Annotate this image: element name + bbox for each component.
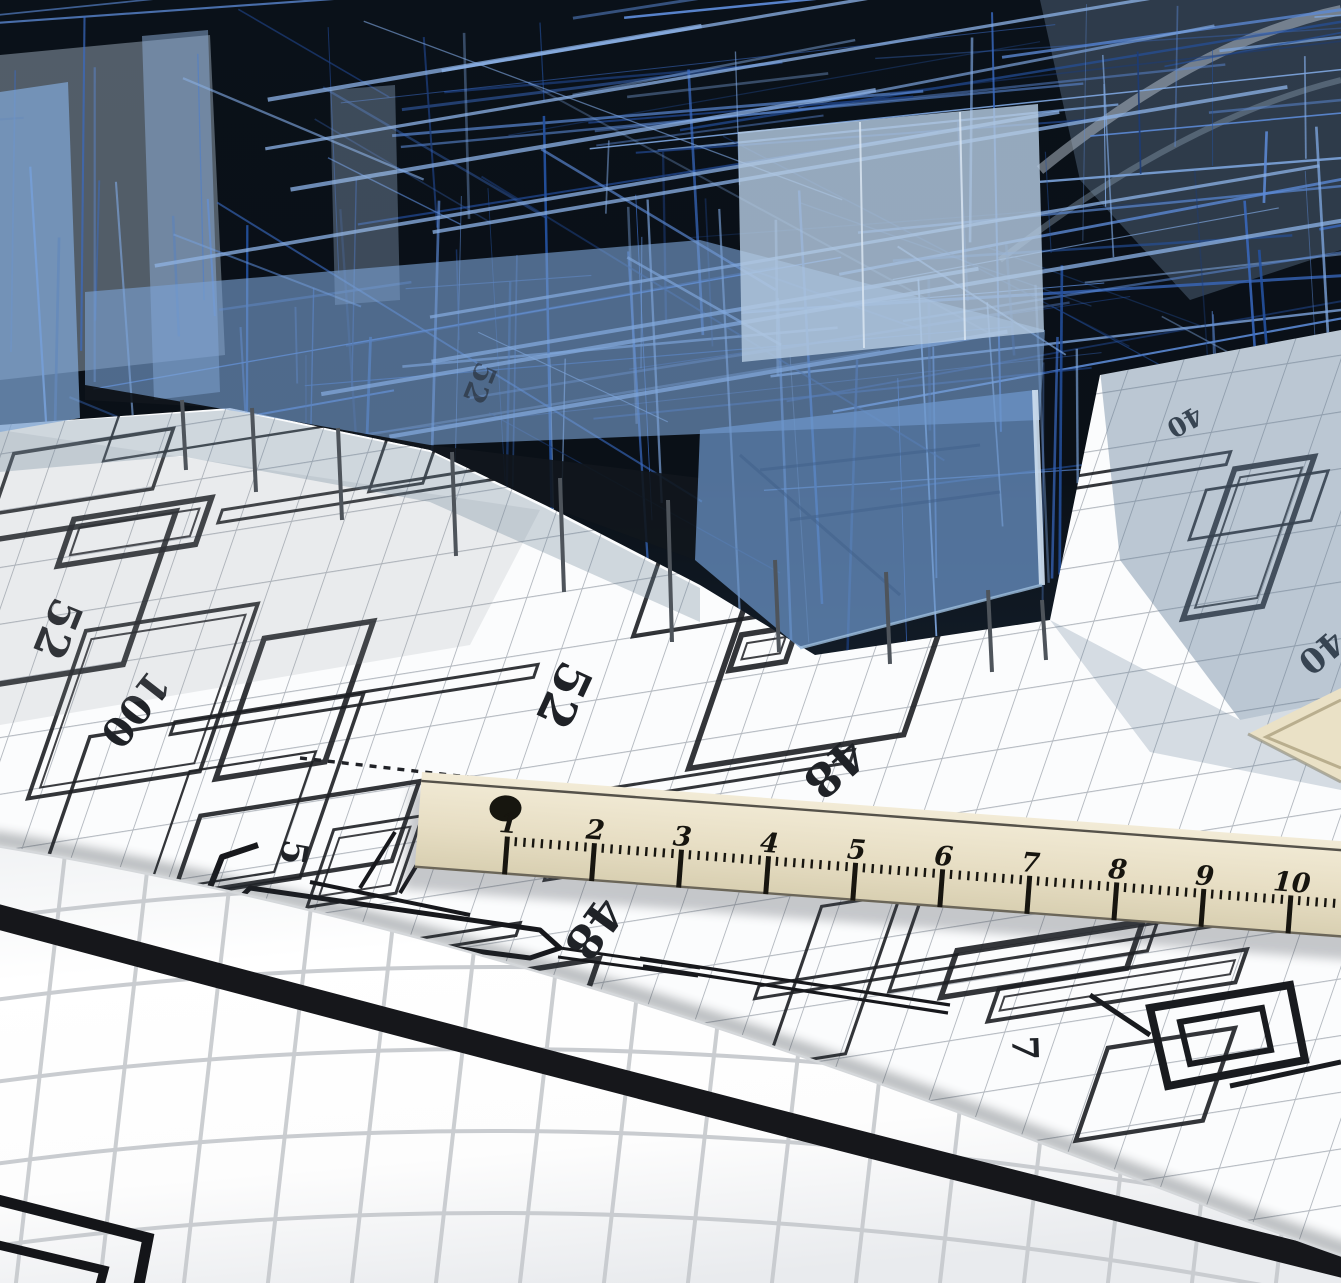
ruler-number: 1 (498, 808, 519, 840)
glass-wall-left (0, 82, 80, 432)
ruler-number: 3 (672, 821, 693, 853)
ruler-number: 4 (759, 828, 780, 860)
ruler-number: 9 (1194, 860, 1215, 892)
blueprint-scene: 52 100 52 48 48 5 40 40 7 (0, 0, 1341, 1283)
ruler-number: 5 (846, 834, 867, 866)
wireframe-line (1305, 56, 1306, 159)
dimension-label: 7 (1003, 1035, 1046, 1062)
ruler-number: 6 (933, 841, 954, 873)
ruler-number: 7 (1020, 847, 1041, 879)
scene-canvas: 52 100 52 48 48 5 40 40 7 (0, 0, 1341, 1283)
ruler-number: 10 (1272, 866, 1312, 900)
ruler-number: 2 (584, 814, 606, 846)
ruler-number: 8 (1106, 854, 1128, 886)
wireframe-line (1077, 349, 1078, 483)
glass-box-right (738, 104, 1044, 362)
